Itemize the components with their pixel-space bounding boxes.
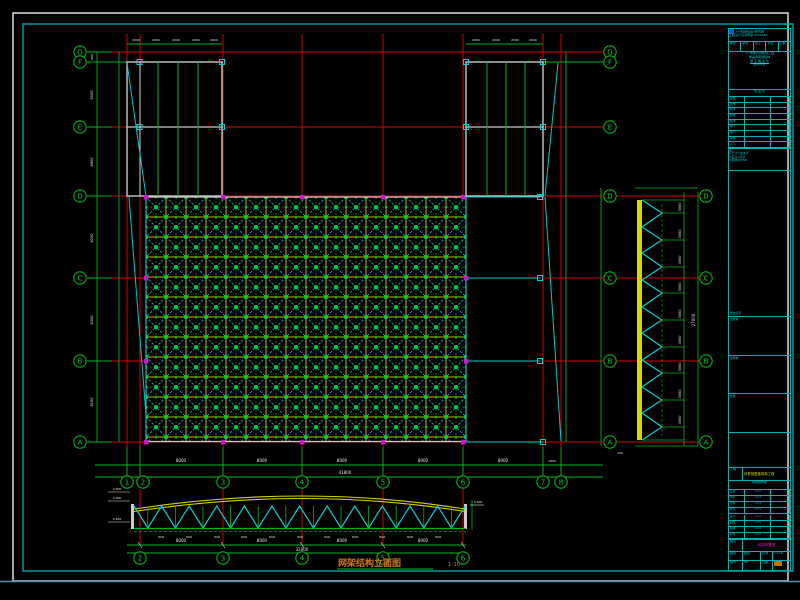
grid-bubble-label: B	[78, 357, 83, 365]
grid-bubble-label: C	[78, 274, 83, 282]
dimension-text: 0.450	[113, 517, 122, 521]
dimension-text: 8250	[90, 234, 94, 243]
dimension-text: 150	[617, 451, 623, 455]
dimension-text: 3000	[678, 336, 682, 345]
drawing-title-row: 图名 网架布置图	[729, 540, 790, 552]
space-frame-lattice	[146, 197, 466, 442]
grid-bubble-label: E	[608, 123, 612, 131]
grid-bubble-label: C	[704, 274, 709, 282]
dimension-text: 3000	[678, 363, 682, 372]
dimension-text: 6500	[90, 91, 94, 100]
dimension-text: 2000	[172, 38, 180, 42]
dimension-text: 1800	[548, 459, 556, 463]
grid-bubble-label: C	[608, 274, 613, 282]
dimension-text: 8000	[418, 458, 429, 463]
grid-bubble-label: G	[77, 48, 82, 56]
dimension-text: 8100	[90, 398, 94, 407]
dimension-text: 32000	[296, 547, 309, 552]
side-wing-structures	[127, 62, 543, 196]
grid-bubble-label: F	[608, 58, 612, 66]
dimension-text: 2000	[511, 38, 519, 42]
sub-title: 网架结构图	[729, 481, 790, 490]
grid-bubble-label: A	[78, 438, 83, 446]
approve-cell: 日期	[779, 42, 790, 51]
dimension-text: 2000	[492, 38, 500, 42]
dimension-text: 8000	[257, 458, 268, 463]
dimension-text: 2000	[152, 38, 160, 42]
dimension-text: 8000	[418, 538, 429, 543]
revision-area: 修改记录	[729, 171, 790, 317]
dimension-text: 3000	[678, 256, 682, 265]
dimension-text: 900	[90, 54, 94, 60]
grid-bubble-label: D	[607, 192, 612, 200]
grid-bubble-label: B	[704, 357, 709, 365]
dimension-text: 4.000	[113, 496, 122, 500]
notes-block: 注: 1.尺寸以毫米计 2.标高以米计 3.钢材Q235B	[729, 149, 790, 171]
approve-cell: 审定	[729, 42, 741, 51]
grid-bubble-label: F	[78, 58, 82, 66]
grid-bubble-label: A	[608, 438, 613, 446]
dimension-text: 3000	[379, 535, 386, 539]
main-truss-elevation	[108, 492, 484, 553]
grid-bubble-label: E	[78, 123, 82, 131]
dimension-text: 3000	[678, 390, 682, 399]
dimension-text: 3000	[678, 230, 682, 239]
dimension-text: 3000	[214, 535, 221, 539]
dimension-text: 8000	[176, 458, 187, 463]
dimension-text: 3000	[269, 535, 276, 539]
dimension-text: 3000	[407, 535, 414, 539]
project-name-row: 工程 体育馆屋盖网架工程	[729, 468, 790, 481]
staff-table: 设总××× 审定××× 审核××× 校对××× 设计××× 制图××× 描图××…	[729, 490, 790, 540]
approve-cell: 专业	[766, 42, 778, 51]
dimension-text: 3000	[186, 535, 193, 539]
company-cert: 工程设计证书甲级 A123456	[729, 33, 767, 37]
title-block-company: ××省建筑设计研究院 工程设计证书甲级 A123456	[729, 29, 790, 42]
dimension-text: 3000	[678, 203, 682, 212]
grid-bubble-label: 2	[138, 554, 142, 562]
stamp-box-1: 出图章	[729, 317, 790, 356]
dimension-text: 2000	[529, 38, 537, 42]
cad-drawing-sheet: 2000200020002000200020002000200020009006…	[0, 0, 800, 600]
project-name-value: 体育馆屋盖网架工程	[743, 468, 790, 480]
meta-row-2: 图号 08 日期	[729, 561, 790, 570]
dimension-text: 3000	[678, 310, 682, 319]
dimension-text: 8000	[257, 538, 268, 543]
dimension-text: 41800	[339, 470, 352, 475]
dimension-text: 4.500	[474, 500, 483, 504]
grid-bubble-label: 2	[141, 478, 145, 486]
dimension-text: 3000	[324, 535, 331, 539]
dimension-text: 3000	[435, 535, 442, 539]
sign-title: 会 签 栏	[729, 90, 790, 97]
dimension-text: 2000	[192, 38, 200, 42]
dimension-text: 3000	[241, 535, 248, 539]
stamp-mark	[774, 561, 782, 566]
grid-bubble-label: 4	[300, 478, 305, 486]
dimension-text: 3000	[352, 535, 359, 539]
grid-bubble-label: 4	[300, 554, 305, 562]
grid-bubble-label: 1	[125, 478, 129, 486]
meta-row-1: 图别 结施 比例 1:100	[729, 552, 790, 561]
side-truss-elevation	[635, 188, 698, 446]
dimension-text: 3000	[678, 283, 682, 292]
dimension-text: 6900	[90, 158, 94, 167]
project-description: ××市体育训练馆工程 屋盖网架钢结构 施 工 图 设 计 结构专业	[729, 52, 790, 90]
dimension-text: 8000	[337, 458, 348, 463]
grid-bubble-label: G	[607, 48, 612, 56]
grid-bubble-label: 3	[221, 478, 225, 486]
stamp-box-3: 批准	[729, 394, 790, 433]
drawing-title-value: 网架布置图	[743, 540, 790, 551]
approve-cell: 总工	[754, 42, 766, 51]
grid-bubble-label: D	[703, 192, 708, 200]
grid-bubble-label: 8	[559, 478, 563, 486]
grid-bubble-label: 5	[381, 478, 385, 486]
dimension-text: 3000	[158, 535, 165, 539]
approve-cell: 审核	[741, 42, 753, 51]
truss-title-scale: 1:10	[448, 562, 461, 568]
dimension-text: 8000	[337, 538, 348, 543]
grid-bubble-label: D	[77, 192, 82, 200]
dimension-text: 8300	[90, 316, 94, 325]
approval-row: 审定 审核 总工 专业 日期	[729, 42, 790, 52]
drawing-title: 网架结构立面图 1:10	[337, 557, 461, 569]
stamp-box-2: 注册章	[729, 356, 790, 394]
grid-bubble-label: 6	[461, 554, 466, 562]
dimension-text: 27000	[691, 313, 696, 326]
specialty-sign-table: 建筑 结构 给水 排水 暖通 电气 动力 总图 工艺	[729, 97, 790, 149]
grid-bubble-label: B	[608, 357, 613, 365]
grid-bubble-label: 3	[221, 554, 225, 562]
stamp-box-4	[729, 433, 790, 468]
dimension-text: 2000	[210, 38, 218, 42]
grid-bubble-label: 6	[461, 478, 466, 486]
dimension-text: 2000	[132, 38, 140, 42]
cad-drawing-canvas: 2000200020002000200020002000200020009006…	[0, 0, 800, 600]
dimension-text: 3000	[678, 416, 682, 425]
dimension-text: 8000	[176, 538, 187, 543]
title-block: ××省建筑设计研究院 工程设计证书甲级 A123456 审定 审核 总工 专业 …	[728, 28, 791, 571]
grid-bubble-label: 7	[541, 478, 545, 486]
grid-bubble-label: A	[704, 438, 709, 446]
dimension-text: 3000	[297, 535, 304, 539]
dimension-text: 4.500	[113, 487, 122, 491]
truss-title-text: 网架结构立面图	[338, 557, 401, 569]
dimension-text: 8000	[498, 458, 509, 463]
dimension-text: 2000	[472, 38, 480, 42]
